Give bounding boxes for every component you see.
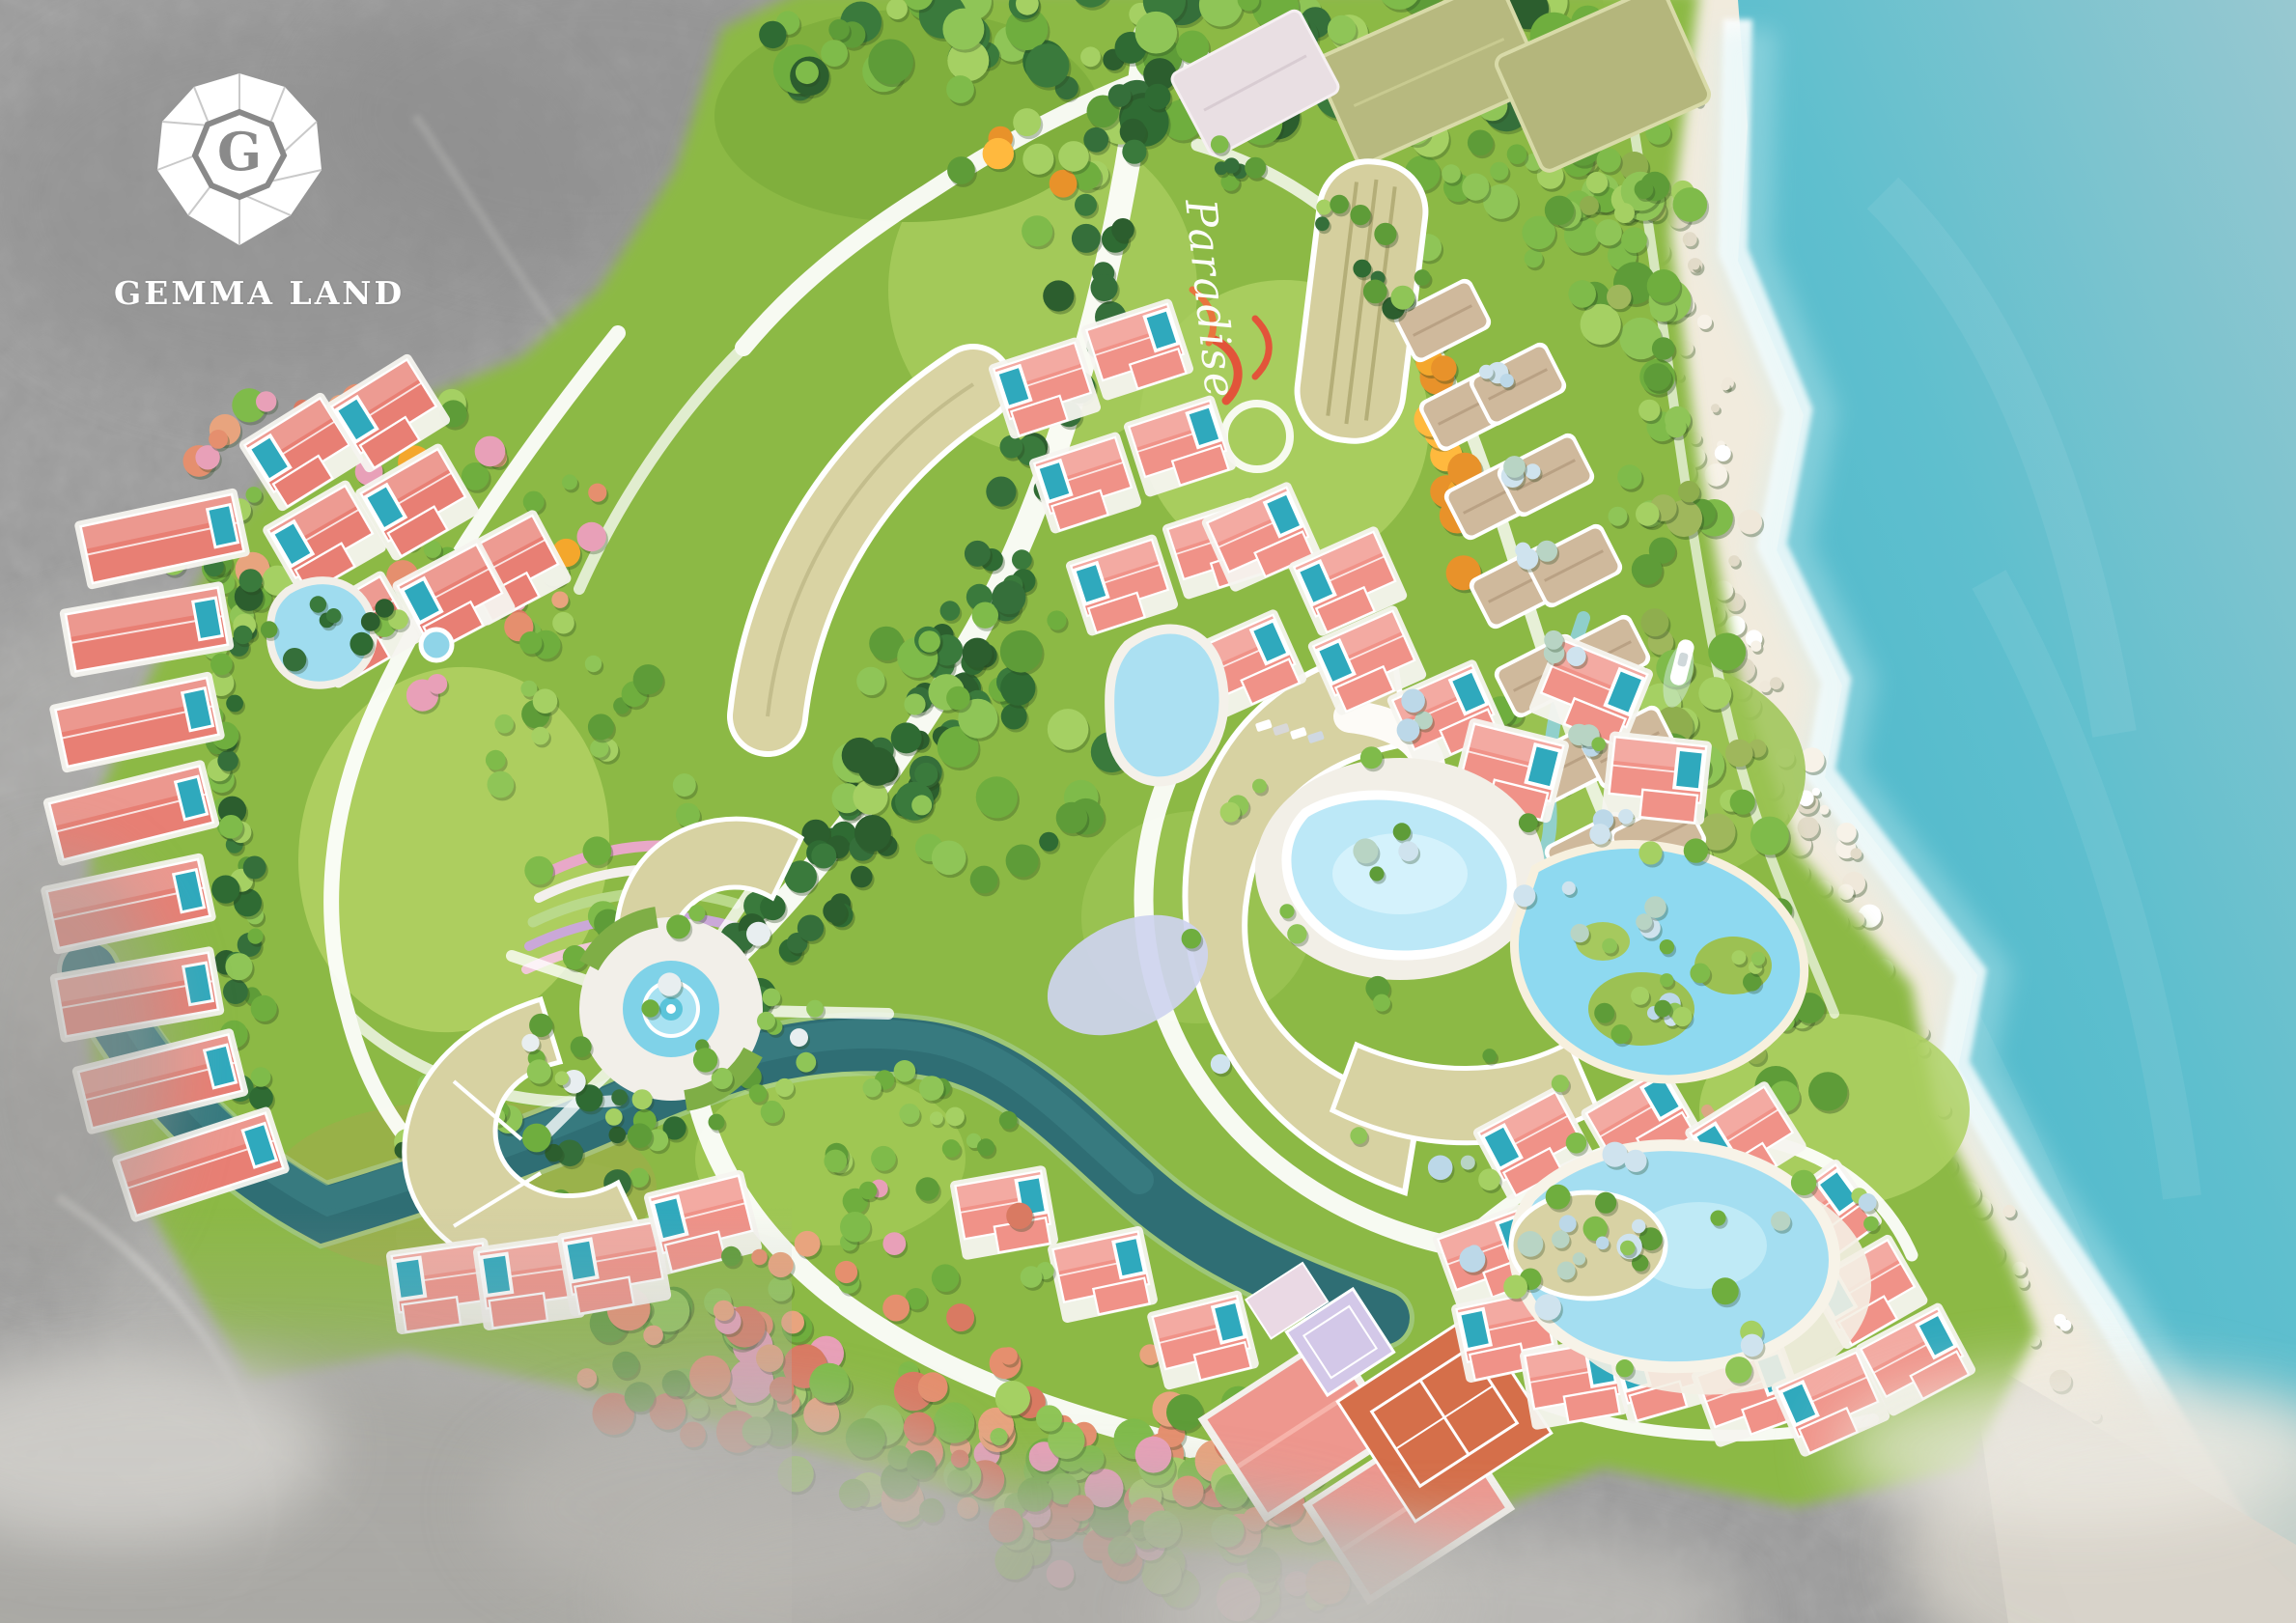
south-forest: [809, 1363, 849, 1403]
island-palm: [1672, 1007, 1692, 1026]
lagoon-palm: [1863, 1217, 1879, 1232]
plaza-garden: [709, 1114, 725, 1131]
boulevard-tree: [1122, 140, 1146, 164]
boulevard-tree: [823, 899, 847, 923]
shrub-clump: [1517, 548, 1538, 570]
coral-forest: [995, 1381, 1030, 1415]
beach-rock: [1759, 681, 1771, 692]
plaza-garden: [693, 1048, 717, 1072]
beach-rock: [1691, 262, 1699, 270]
median-forest: [1006, 845, 1039, 878]
reflecting-pond: [1109, 630, 1223, 782]
masterplan-screenshot: Paradise G: [0, 0, 2296, 1623]
plaza-garden: [521, 1034, 539, 1051]
orange-tree: [1431, 355, 1457, 381]
plaza-garden: [688, 905, 705, 921]
beach-forest: [1636, 502, 1660, 526]
lagoon-palm: [1566, 1133, 1587, 1154]
beach-rock: [1798, 817, 1819, 838]
beach-forest: [1643, 363, 1671, 391]
northeast-forest: [1597, 148, 1621, 172]
coral-forest: [1000, 1347, 1018, 1364]
northeast-forest: [1490, 162, 1508, 181]
northeast-forest: [1635, 180, 1654, 199]
island-palm: [1631, 987, 1649, 1005]
clubhouse-garden: [1571, 924, 1589, 942]
median-forest: [976, 776, 1018, 818]
northeast-forest: [1462, 174, 1489, 201]
island-palm: [1573, 1252, 1585, 1265]
clubhouse-garden: [1602, 938, 1617, 954]
northeast-forest: [1673, 187, 1708, 222]
median-forest: [1056, 802, 1088, 834]
beach-forest: [1730, 790, 1755, 815]
median-forest: [1047, 610, 1066, 630]
clubhouse-garden: [1482, 1049, 1497, 1063]
median-forest: [854, 815, 891, 852]
top-forest: [796, 61, 819, 84]
shrub-clump: [1503, 456, 1526, 478]
west-garden: [577, 522, 606, 551]
canal-bank-trees: [605, 1108, 623, 1126]
northeast-forest: [1621, 227, 1647, 253]
beach-rock: [1683, 232, 1697, 246]
clubhouse-garden: [1252, 779, 1267, 794]
beach-rock: [1836, 823, 1857, 843]
orange-grove: [983, 138, 1014, 169]
west-scatter: [583, 836, 612, 865]
beach-forest: [1609, 507, 1628, 526]
shrub-clump: [1500, 374, 1514, 387]
island-palm: [1559, 1215, 1577, 1232]
canal-bank-trees: [999, 1111, 1018, 1130]
beach-forest: [1652, 337, 1675, 360]
clubhouse-garden: [1591, 737, 1606, 751]
beach-forest: [1568, 280, 1596, 308]
clubhouse-garden: [1401, 689, 1425, 714]
boulevard-tree: [891, 722, 922, 753]
median-forest: [904, 693, 925, 714]
clubhouse-garden: [1360, 746, 1383, 769]
beach-rock: [1738, 510, 1763, 535]
west-scatter: [585, 656, 602, 672]
hedge-row: [251, 1067, 271, 1087]
clubhouse-garden: [1369, 866, 1384, 881]
island-palm: [1596, 1237, 1610, 1250]
villa-pool: [1113, 1237, 1145, 1277]
villa-pool: [193, 598, 223, 640]
west-scatter: [494, 714, 514, 734]
clubhouse-garden: [1397, 718, 1420, 742]
boulevard-tree: [1091, 274, 1118, 301]
shrub-clump: [1589, 824, 1610, 845]
beach-forest: [1666, 417, 1687, 438]
beach-rock: [1721, 381, 1729, 390]
island-palm: [1557, 1262, 1576, 1280]
median-forest: [856, 667, 884, 695]
small-round-pool: [421, 630, 452, 660]
beach-forest: [1647, 269, 1681, 303]
south-forest: [918, 1372, 948, 1402]
west-scatter: [488, 771, 515, 798]
clubhouse-garden: [1373, 994, 1390, 1012]
beach-forest: [1640, 608, 1668, 636]
clubhouse-garden: [1350, 1127, 1367, 1144]
west-scatter: [633, 664, 663, 694]
boulevard-tree: [986, 477, 1016, 507]
canal-bank-trees: [919, 1076, 944, 1101]
beach-rock: [1728, 555, 1740, 567]
beach-rock: [2059, 1320, 2071, 1331]
pond-garden: [375, 599, 394, 618]
plaza-garden: [529, 1014, 552, 1037]
gem-monogram: G: [217, 121, 262, 182]
west-garden: [256, 391, 276, 411]
clubhouse-garden: [1279, 904, 1294, 918]
beach-rock: [1851, 848, 1862, 859]
hedge-row: [239, 569, 263, 592]
boulevard-tree: [965, 541, 991, 567]
south-garden: [840, 1212, 870, 1242]
west-scatter: [533, 688, 558, 714]
hedge-row: [243, 856, 266, 880]
south-garden: [882, 1232, 906, 1255]
plaza-garden: [666, 914, 690, 938]
canal-bank-trees: [824, 1150, 847, 1173]
south-garden: [882, 1295, 910, 1322]
boulevard-tree: [1108, 84, 1132, 107]
top-forest: [1135, 12, 1178, 54]
beach-forest: [1725, 740, 1753, 768]
south-garden: [1021, 1266, 1043, 1288]
boulevard-tree: [1072, 224, 1101, 253]
beach-rock: [1770, 677, 1782, 689]
top-forest: [1328, 15, 1357, 44]
beach-rock: [1715, 445, 1731, 462]
lagoon-palm: [1459, 1246, 1485, 1273]
island-palm: [1751, 952, 1765, 965]
lagoon-palm: [1603, 1142, 1628, 1167]
beach-rock: [1711, 404, 1720, 412]
lagoon-palm: [1710, 1211, 1725, 1226]
clubhouse-garden: [1461, 1156, 1475, 1170]
shrub-clump: [1636, 913, 1652, 930]
beach-forest: [1808, 1072, 1847, 1110]
south-garden: [946, 1303, 974, 1331]
clubhouse-garden: [1660, 973, 1673, 987]
northeast-forest: [1468, 130, 1494, 156]
west-garden: [475, 436, 506, 467]
coral-forest: [1166, 1394, 1203, 1431]
clubhouse-garden: [1552, 1075, 1569, 1092]
northeast-forest: [1545, 196, 1574, 225]
west-garden: [551, 592, 568, 608]
shrub-clump: [1566, 647, 1585, 666]
plaza-garden: [763, 989, 781, 1007]
island-palm: [1594, 1003, 1614, 1023]
south-garden: [835, 1261, 857, 1283]
median-forest: [1000, 670, 1035, 705]
road-trees: [1390, 286, 1414, 310]
canal-bank-trees: [894, 1060, 916, 1082]
clubhouse-garden: [1513, 884, 1535, 907]
clubhouse-garden: [1353, 838, 1378, 863]
beach-forest: [1607, 285, 1632, 310]
island-palm: [1654, 1000, 1671, 1018]
shrub-clump: [1479, 365, 1494, 379]
south-forest: [934, 1402, 974, 1442]
clubhouse-garden: [1478, 1168, 1500, 1190]
road-trees: [1350, 205, 1370, 225]
lagoon-palm: [1595, 1192, 1616, 1214]
lagoon-palm: [1546, 1185, 1571, 1210]
beach-forest: [1698, 677, 1731, 710]
pond-garden: [234, 626, 253, 645]
top-forest: [1025, 43, 1069, 87]
northeast-forest: [1442, 164, 1461, 183]
boulevard-tree: [1000, 435, 1023, 459]
canal-bank-trees: [899, 1104, 919, 1124]
boulevard-tree: [963, 638, 993, 668]
beach-forest: [1632, 554, 1663, 585]
beach-rock: [1705, 463, 1728, 487]
clubhouse-garden: [1690, 964, 1710, 984]
clubhouse-garden: [1211, 1054, 1230, 1074]
canal-bank-trees: [945, 1107, 965, 1127]
lagoon-palm: [1535, 1294, 1561, 1320]
clubhouse-garden: [1660, 939, 1674, 954]
villa-pool: [1459, 1309, 1491, 1350]
shrub-clump: [1618, 809, 1634, 825]
pond-garden: [326, 608, 341, 623]
clubhouse-garden: [1428, 1156, 1453, 1181]
plaza-garden: [628, 1123, 653, 1148]
road-trees: [1211, 135, 1229, 154]
west-scatter: [519, 631, 542, 654]
northeast-forest: [1507, 144, 1527, 164]
west-garden: [562, 474, 577, 490]
south-garden: [859, 1182, 878, 1200]
median-forest: [1048, 709, 1089, 750]
road-trees: [1316, 200, 1331, 215]
pond-garden: [310, 596, 326, 612]
beach-rock: [1812, 788, 1820, 796]
pond-garden: [350, 632, 373, 656]
road-trees: [1315, 216, 1330, 231]
canal-bank-trees: [977, 1138, 994, 1156]
pond-garden: [283, 648, 306, 671]
plaza-garden: [790, 1028, 808, 1047]
clubhouse-garden: [1519, 813, 1538, 832]
boulevard-tree: [851, 866, 873, 888]
plaza-garden: [658, 972, 681, 995]
lagoon-palm: [1616, 1359, 1634, 1377]
boulevard-tree: [1012, 549, 1032, 570]
plaza-garden: [749, 1084, 768, 1103]
lagoon-palm: [1620, 1241, 1636, 1256]
top-forest: [942, 9, 984, 50]
island-palm: [1610, 1024, 1630, 1044]
clubhouse-garden: [1398, 841, 1418, 861]
hedge-row: [219, 815, 243, 839]
hedge-row: [251, 995, 277, 1021]
fountain-plaza: [579, 917, 763, 1101]
coral-forest: [1135, 1437, 1172, 1473]
boulevard-tree: [1043, 280, 1074, 311]
clubhouse-garden: [1684, 838, 1708, 862]
south-garden: [795, 1231, 821, 1257]
island-palm: [1731, 950, 1746, 965]
hedge-row: [247, 929, 263, 944]
boulevard-tree: [798, 915, 824, 941]
lagoon-palm: [1791, 1170, 1816, 1195]
villa: [1602, 731, 1713, 825]
west-garden: [427, 674, 447, 694]
gemma-gem-logo: G: [119, 56, 360, 264]
lagoon-palm: [1632, 1219, 1645, 1233]
road-trees: [1363, 280, 1387, 304]
orange-grove: [1013, 108, 1041, 136]
beach-forest: [1595, 219, 1621, 245]
clubhouse-garden: [1287, 924, 1306, 943]
hedge-row: [223, 979, 248, 1004]
beach-rock: [1697, 315, 1712, 329]
median-forest: [932, 841, 966, 876]
median-forest: [857, 747, 896, 786]
orange-grove: [1022, 144, 1053, 175]
lagoon-palm: [1503, 1275, 1527, 1300]
plaza-garden: [571, 1036, 592, 1057]
top-forest: [759, 21, 786, 48]
orange-grove: [1022, 215, 1052, 246]
island-palm: [1552, 1230, 1570, 1248]
lagoon-palm: [1771, 1211, 1790, 1230]
south-garden: [915, 1177, 938, 1200]
canal-bank-trees: [775, 1078, 794, 1097]
pond-garden: [361, 612, 380, 631]
hedge-row: [210, 654, 233, 676]
hedge-row: [217, 750, 238, 771]
lagoon-palm: [1741, 1334, 1764, 1357]
villa: [949, 1164, 1059, 1260]
road-trees: [1374, 223, 1396, 245]
boulevard-tree: [811, 844, 836, 869]
hedge-row: [226, 695, 243, 713]
boulevard-tree: [1075, 194, 1097, 216]
beach-rock: [1819, 805, 1829, 815]
median-forest: [970, 866, 998, 894]
median-forest: [946, 686, 970, 711]
top-forest: [946, 75, 974, 103]
plaza-garden: [806, 1000, 824, 1018]
median-forest: [940, 601, 961, 621]
south-garden: [932, 1264, 960, 1292]
beach-forest: [1750, 817, 1789, 855]
orange-grove: [947, 156, 975, 184]
orange-grove: [1058, 141, 1089, 172]
plaza-garden: [641, 999, 658, 1017]
hedge-row: [225, 953, 252, 980]
median-forest: [911, 795, 932, 815]
beach-rock: [1838, 884, 1854, 900]
beach-forest: [1678, 481, 1699, 502]
coral-forest: [990, 1428, 1007, 1445]
west-scatter: [673, 773, 696, 797]
boulevard-tree: [1111, 218, 1134, 241]
brand-logo-block: G GEMMA LAND: [114, 56, 365, 312]
canal-bank-trees: [796, 1052, 816, 1073]
villa-pool: [183, 963, 213, 1005]
shrub-clump: [1544, 630, 1563, 650]
south-garden: [1006, 1203, 1032, 1229]
top-forest: [821, 40, 848, 67]
west-scatter: [531, 727, 549, 745]
lagoon-palm: [1518, 1231, 1544, 1257]
beach-forest: [1708, 633, 1746, 671]
west-scatter: [486, 750, 506, 770]
canal-bank-trees: [863, 1078, 882, 1097]
boulevard-tree: [1145, 84, 1171, 110]
plaza-garden: [632, 1089, 653, 1109]
hedge-row: [245, 487, 262, 503]
clubhouse-garden: [1182, 929, 1202, 949]
beach-rock: [1750, 641, 1761, 652]
coral-forest: [1036, 1405, 1062, 1431]
hedge-row: [211, 876, 239, 904]
west-scatter: [588, 714, 614, 740]
plaza-garden: [555, 1071, 570, 1085]
northeast-forest: [1586, 172, 1608, 193]
lagoon-palm: [1624, 1150, 1646, 1172]
beach-rock: [2002, 1205, 2015, 1217]
clubhouse-garden: [1393, 823, 1411, 840]
clubhouse-garden: [1562, 881, 1576, 895]
plaza-garden: [527, 1059, 551, 1083]
beach-forest: [1617, 464, 1641, 489]
lagoon-palm: [1859, 1193, 1877, 1212]
median-forest: [1000, 630, 1043, 673]
road-trees: [1353, 260, 1371, 278]
boulevard-tree: [1083, 127, 1108, 153]
canal-bank-trees: [609, 1127, 627, 1144]
canal-bank-trees: [871, 1146, 896, 1171]
road-trees: [1223, 157, 1239, 173]
villa-pool: [1674, 749, 1704, 790]
brand-wordmark: GEMMA LAND: [114, 274, 365, 312]
lagoon-palm: [1712, 1277, 1739, 1304]
top-forest: [1080, 46, 1101, 67]
canal-bank-trees: [930, 1111, 943, 1125]
clubhouse-garden: [1220, 802, 1241, 823]
west-garden: [552, 612, 574, 634]
median-forest: [992, 580, 1025, 614]
northeast-forest: [1614, 203, 1635, 223]
west-scatter: [524, 856, 553, 885]
top-forest: [868, 40, 913, 85]
clubhouse-garden: [1638, 841, 1662, 864]
road-trees: [1245, 157, 1266, 179]
lagoon-palm: [1725, 1357, 1752, 1384]
west-garden: [588, 484, 606, 502]
west-garden: [523, 491, 545, 513]
plaza-garden: [746, 922, 770, 946]
shrub-clump: [1525, 463, 1540, 479]
top-forest: [828, 19, 850, 41]
median-forest: [1039, 832, 1058, 852]
canal-bank-trees: [942, 1139, 961, 1158]
west-garden: [209, 430, 228, 449]
road-trees: [1414, 269, 1431, 286]
